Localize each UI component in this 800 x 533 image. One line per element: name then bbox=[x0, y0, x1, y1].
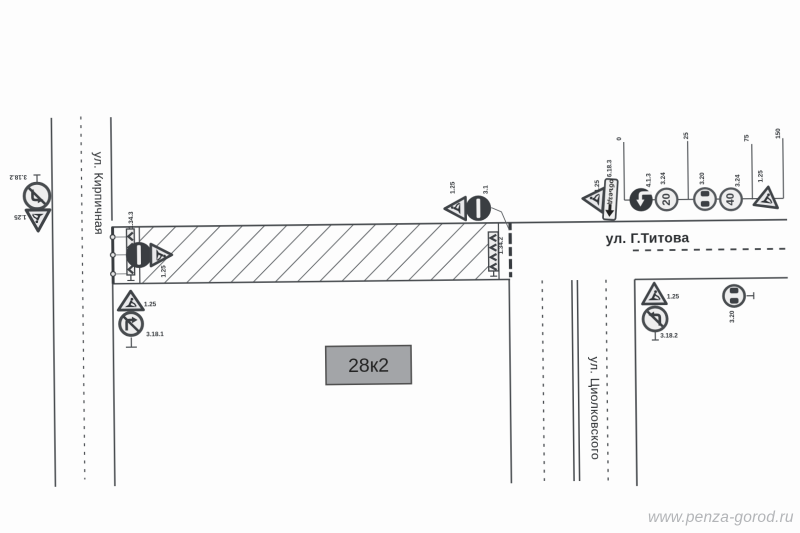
svg-text:1.25: 1.25 bbox=[594, 180, 601, 193]
svg-text:1.34.3: 1.34.3 bbox=[128, 211, 135, 229]
svg-text:75: 75 bbox=[744, 134, 751, 142]
svg-text:3.18.1: 3.18.1 bbox=[146, 331, 164, 338]
svg-text:20: 20 bbox=[661, 193, 673, 206]
svg-text:ул. Циолковского: ул. Циолковского bbox=[588, 357, 603, 461]
svg-text:3.18.2: 3.18.2 bbox=[9, 173, 27, 180]
svg-text:1.25: 1.25 bbox=[160, 265, 167, 278]
svg-text:1.25: 1.25 bbox=[14, 213, 27, 220]
svg-text:ул. Кирпичная: ул. Кирпичная bbox=[91, 152, 106, 235]
svg-text:объезд: объезд bbox=[606, 179, 615, 205]
svg-text:1.25: 1.25 bbox=[450, 181, 457, 194]
svg-text:25: 25 bbox=[683, 132, 690, 140]
svg-text:1.25: 1.25 bbox=[757, 170, 764, 183]
svg-text:1.34.2: 1.34.2 bbox=[497, 236, 504, 254]
svg-text:150: 150 bbox=[775, 128, 782, 139]
svg-text:0: 0 bbox=[616, 137, 623, 141]
svg-text:3.1: 3.1 bbox=[483, 185, 490, 194]
svg-text:28к2: 28к2 bbox=[348, 355, 389, 377]
svg-text:1.25: 1.25 bbox=[667, 293, 680, 300]
svg-text:4.1.3: 4.1.3 bbox=[645, 173, 652, 188]
svg-text:1.25: 1.25 bbox=[144, 301, 157, 308]
svg-text:3.20: 3.20 bbox=[729, 310, 736, 323]
svg-text:ул. Г.Титова: ул. Г.Титова bbox=[606, 230, 690, 246]
svg-text:40: 40 bbox=[725, 193, 737, 206]
svg-text:3.24: 3.24 bbox=[660, 172, 667, 185]
svg-text:3.18.2: 3.18.2 bbox=[660, 332, 678, 339]
svg-text:3.20: 3.20 bbox=[699, 172, 706, 185]
svg-text:6.18.3: 6.18.3 bbox=[606, 159, 613, 177]
svg-text:3.24: 3.24 bbox=[735, 174, 742, 187]
